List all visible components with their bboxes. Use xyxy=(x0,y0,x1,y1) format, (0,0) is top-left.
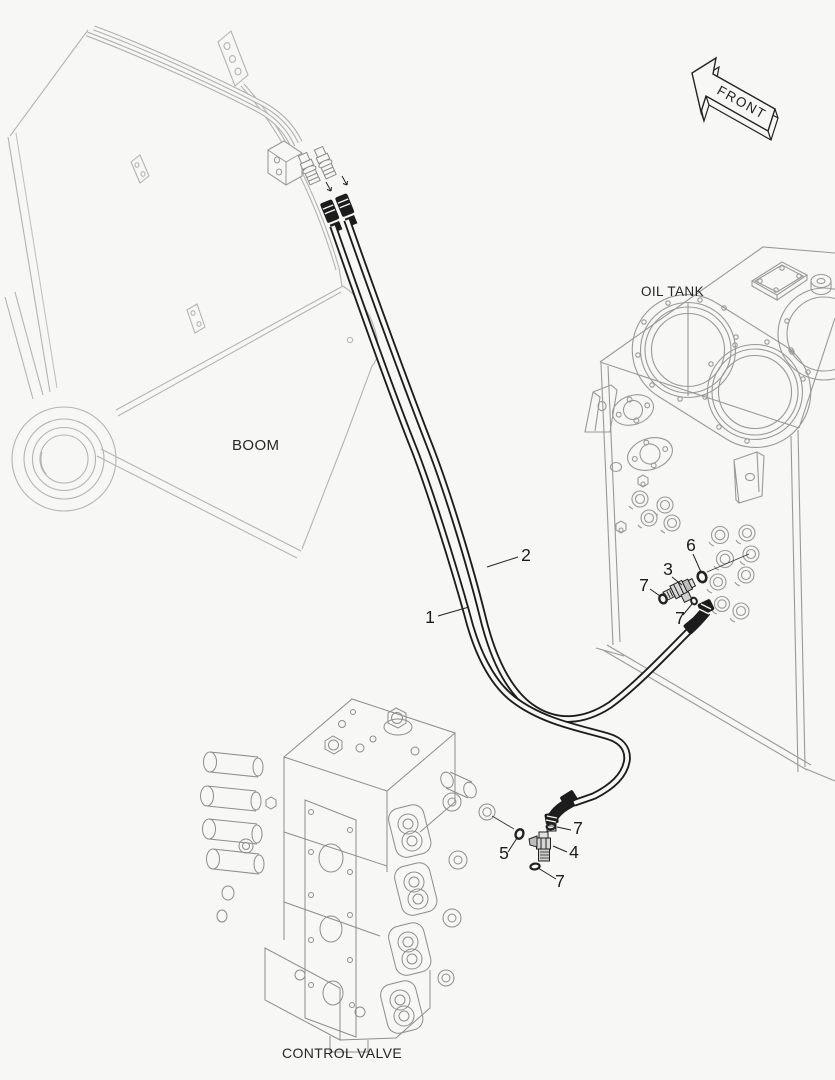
oil-tank-drawing xyxy=(585,247,835,781)
front-arrow: FRONT xyxy=(692,58,778,140)
callout-4: 4 xyxy=(569,842,579,862)
tank-manholes xyxy=(632,288,835,447)
callout-7-tank-lower: 7 xyxy=(675,608,685,628)
control-valve-drawing xyxy=(201,699,496,1052)
callout-5: 5 xyxy=(499,843,509,863)
o-ring-6 xyxy=(696,571,707,584)
o-ring-7-tank-lower xyxy=(690,597,698,606)
tank-cover-plate xyxy=(752,262,807,300)
tank-bracket xyxy=(734,452,764,503)
callout-7-valve-bottom: 7 xyxy=(555,871,565,891)
callout-3: 3 xyxy=(663,559,673,579)
boom-label: BOOM xyxy=(232,437,279,454)
hoses xyxy=(333,220,690,803)
hose-clamp xyxy=(268,141,359,234)
o-ring-5 xyxy=(514,828,525,840)
valve-left-caps xyxy=(201,752,265,922)
boom-pivot-boss xyxy=(12,407,116,511)
callout-7-tank-left: 7 xyxy=(639,575,649,595)
boom-plate-top xyxy=(131,155,149,183)
tank-hose-elbow xyxy=(683,599,715,635)
assembly-axis-lines xyxy=(492,554,749,829)
boom-bracket-3hole xyxy=(218,31,248,86)
callouts: 1 2 3 6 7 7 7 4 5 7 xyxy=(425,535,696,891)
boom-tubes xyxy=(87,28,300,147)
oil-tank-label: OIL TANK xyxy=(641,284,704,299)
tank-round-cap xyxy=(811,275,831,295)
boom-plate-mid xyxy=(187,304,205,333)
control-valve-label: CONTROL VALVE xyxy=(282,1045,402,1061)
callout-1: 1 xyxy=(425,607,435,627)
valve-fitting xyxy=(529,832,551,861)
callout-2: 2 xyxy=(521,545,531,565)
tank-ports-right xyxy=(707,525,759,622)
diagram-page: 1 2 3 6 7 7 7 4 5 7 BOOM OIL TANK CONTRO… xyxy=(0,0,835,1080)
boom-drawing xyxy=(5,30,378,558)
diagram-canvas: 1 2 3 6 7 7 7 4 5 7 BOOM OIL TANK CONTRO… xyxy=(0,0,835,1080)
callout-6: 6 xyxy=(686,535,696,555)
o-ring-7-valve-bottom xyxy=(530,863,540,870)
assembly-arrow-icon xyxy=(326,176,348,191)
valve-relief xyxy=(439,770,495,820)
tank-fitting-assembly xyxy=(658,571,715,635)
callout-7-valve-top: 7 xyxy=(573,818,583,838)
tank-ports-left xyxy=(629,491,680,533)
tank-flange-2 xyxy=(623,432,676,476)
